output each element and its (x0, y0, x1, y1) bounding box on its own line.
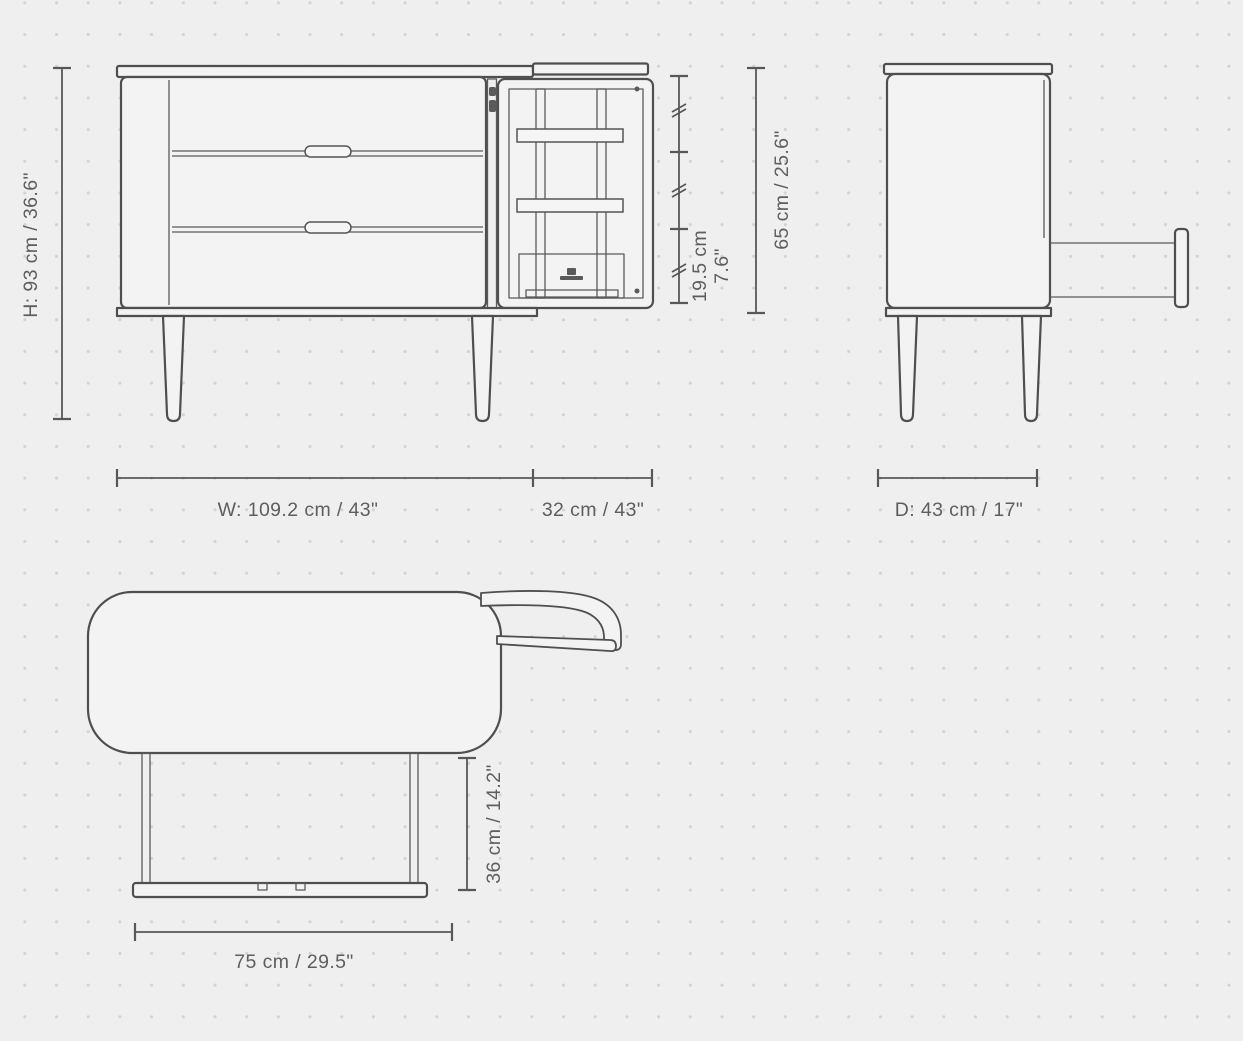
dimension-cabinet-height: 65 cm / 25.6" (747, 68, 793, 313)
front-door-top-panel (533, 64, 648, 75)
side-drawer-front (1175, 229, 1188, 307)
front-leg-right (472, 316, 493, 421)
front-cabinet-body (121, 77, 486, 308)
dimension-shelf-spacing: 19.5 cm 7.6" (670, 76, 733, 303)
cabinet-height-label: 65 cm / 25.6" (771, 130, 793, 249)
side-leg-left (898, 316, 917, 421)
top-drawer-side-left (142, 753, 150, 883)
top-view (88, 591, 621, 897)
hinge-icon (489, 100, 496, 112)
top-cabinet-outline (88, 592, 501, 753)
front-drawer-handle-1 (305, 146, 351, 157)
height-label: H: 93 cm / 36.6" (20, 172, 42, 318)
front-view (117, 64, 653, 422)
front-hinge-stile (488, 79, 497, 308)
front-door-shelf-1 (517, 129, 623, 142)
front-door-shelf-2 (517, 199, 623, 212)
screw-icon (635, 87, 640, 92)
hinge-icon (489, 87, 496, 96)
door-width-label: 32 cm / 43" (542, 499, 644, 521)
top-drawer-side-right (410, 753, 418, 883)
side-top-panel (884, 64, 1052, 74)
front-leg-left (163, 316, 184, 421)
dimension-depth: D: 43 cm / 17" (878, 469, 1037, 521)
front-top-panel (117, 66, 533, 77)
dimension-drawer-extension: 36 cm / 14.2" (458, 758, 505, 890)
technical-drawing: H: 93 cm / 36.6" 65 cm / 25.6" 19.5 cm 7… (0, 0, 1243, 1041)
dimension-diagram: H: 93 cm / 36.6" 65 cm / 25.6" 19.5 cm 7… (0, 0, 1243, 1041)
side-leg-right (1022, 316, 1041, 421)
side-cabinet-body (887, 74, 1050, 308)
dimension-drawer-width: 75 cm / 29.5" (135, 923, 452, 973)
dimension-width: W: 109.2 cm / 43" 32 cm / 43" (117, 469, 652, 521)
width-label: W: 109.2 cm / 43" (218, 499, 379, 521)
top-open-door-panel (497, 636, 616, 651)
screw-icon (635, 289, 640, 294)
shelf-spacing-cm-label: 19.5 cm (689, 230, 711, 302)
side-plinth (886, 308, 1051, 316)
top-drawer-front (133, 883, 427, 897)
drawer-extension-label: 36 cm / 14.2" (483, 764, 505, 883)
depth-label: D: 43 cm / 17" (895, 499, 1023, 521)
front-plinth (117, 308, 537, 316)
side-view (884, 64, 1188, 421)
dimension-height: H: 93 cm / 36.6" (20, 68, 71, 419)
drawer-width-label: 75 cm / 29.5" (234, 951, 353, 973)
front-drawer-handle-2 (305, 222, 351, 233)
shelf-spacing-in-label: 7.6" (711, 248, 733, 284)
